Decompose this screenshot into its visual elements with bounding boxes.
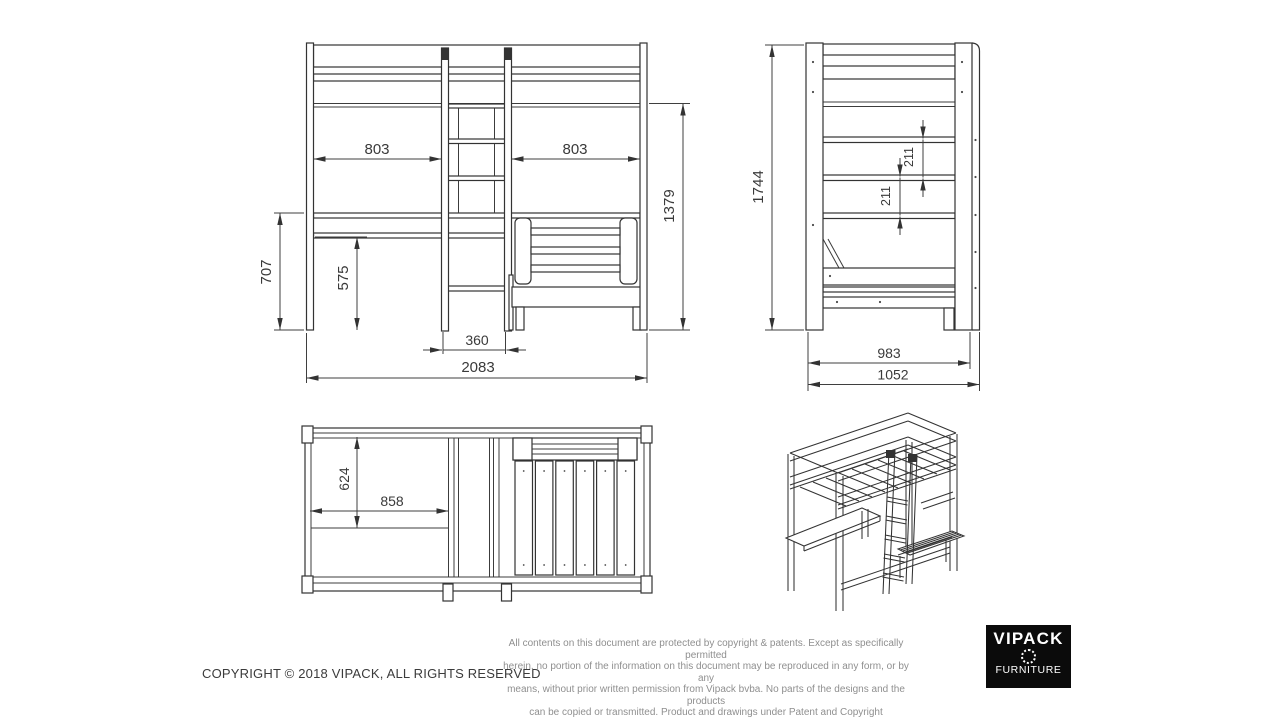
copyright-text: COPYRIGHT © 2018 VIPACK, ALL RIGHTS RESE… [202, 666, 541, 681]
dim-total-height-label: 1744 [750, 170, 767, 203]
dim-575: 575 [315, 237, 367, 330]
front-view: 803 803 1379 707 575 3 [258, 43, 690, 383]
top-chair [513, 438, 637, 575]
disclaimer-line-3: means, without prior written permission … [500, 684, 912, 707]
side-right-post [955, 43, 972, 330]
front-second-rail [314, 74, 641, 81]
dim-803-left: 803 [314, 141, 442, 159]
dim-1052: 1052 [808, 332, 980, 391]
front-top-guard-rail [314, 45, 641, 67]
top-post-bl [302, 576, 313, 593]
dim-lower-gap-label: 211 [879, 186, 893, 206]
dim-desk-height-label: 707 [258, 259, 275, 284]
top-view: 624 858 [302, 426, 652, 601]
vipack-logo: VIPACK FURNITURE [986, 625, 1071, 688]
front-left-post [307, 43, 314, 330]
side-left-post [806, 43, 823, 330]
dim-ladder-width-label: 360 [465, 332, 489, 348]
front-chair [509, 218, 641, 330]
front-shelf [459, 108, 495, 213]
ladder-hook-left [442, 48, 449, 60]
drawing-sheet: 803 803 1379 707 575 3 [0, 0, 1280, 720]
dim-1744: 1744 [750, 45, 804, 330]
side-screw-dots [812, 61, 977, 303]
dim-803-right: 803 [512, 141, 641, 159]
disclaimer-text: All contents on this document are protec… [500, 638, 912, 719]
dim-858: 858 [310, 493, 449, 511]
top-ladder-column [449, 438, 500, 577]
dim-1379: 1379 [649, 104, 690, 331]
dim-360: 360 [423, 332, 526, 354]
dim-bed-depth-label: 624 [336, 467, 352, 491]
front-right-post [640, 43, 647, 330]
top-ladder-foot-left [443, 584, 453, 601]
ladder-hook-right [505, 48, 512, 60]
dim-left-bay-label: 803 [364, 141, 389, 158]
logo-dots-icon [1021, 649, 1036, 664]
top-post-tr [641, 426, 652, 443]
technical-drawing-canvas: 803 803 1379 707 575 3 [0, 0, 1280, 620]
dim-624: 624 [336, 437, 357, 528]
side-seat [823, 268, 955, 330]
iso-post-front-left [836, 474, 843, 611]
disclaimer-line-2: herein, no portion of the information on… [500, 661, 912, 684]
front-ladder-rungs [444, 104, 509, 291]
logo-subbrand-text: FURNITURE [986, 665, 1071, 676]
iso-view [786, 413, 964, 611]
top-ladder-foot-right [502, 584, 512, 601]
logo-brand-text: VIPACK [986, 630, 1071, 647]
dim-211-lower: 211 [879, 158, 900, 235]
disclaimer-line-4: can be copied or transmitted. Product an… [500, 707, 912, 719]
disclaimer-line-1: All contents on this document are protec… [500, 638, 912, 661]
dim-frame-depth-label: 983 [877, 345, 901, 361]
dim-211-upper: 211 [902, 120, 923, 197]
iso-post-back-left [788, 454, 794, 591]
dim-right-bay-label: 803 [562, 141, 587, 158]
dim-total-width-label: 2083 [461, 359, 494, 376]
top-post-br [641, 576, 652, 593]
dim-desk-width-label: 858 [380, 493, 404, 509]
iso-desk [786, 508, 880, 551]
dim-upper-gap-label: 211 [902, 147, 916, 167]
dim-total-depth-label: 1052 [877, 367, 908, 383]
dim-desk-clearance-label: 575 [335, 265, 352, 290]
side-view: 1744 211 211 983 1052 [750, 43, 980, 391]
dim-under-bed-height-label: 1379 [661, 189, 678, 222]
dim-707: 707 [258, 213, 304, 330]
top-post-tl [302, 426, 313, 443]
